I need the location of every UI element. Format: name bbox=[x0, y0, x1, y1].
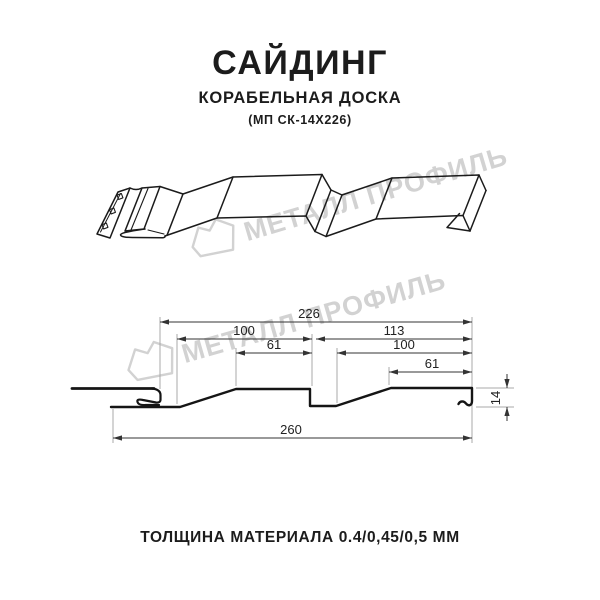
technical-drawing: МЕТАЛЛ ПРОФИЛЬ МЕТАЛЛ ПРОФИЛЬ bbox=[0, 0, 600, 600]
sheet-profile bbox=[111, 388, 472, 407]
hook-band bbox=[125, 187, 160, 232]
material-thickness-caption: ТОЛЩИНА МАТЕРИАЛА 0.4/0,45/0,5 ММ bbox=[0, 529, 600, 547]
dim-right-inner: 100 bbox=[393, 337, 415, 352]
watermark-top: МЕТАЛЛ ПРОФИЛЬ bbox=[187, 135, 511, 262]
dim-overall-width: 260 bbox=[280, 422, 302, 437]
extension-lines bbox=[113, 317, 514, 443]
nail-strip-holes bbox=[102, 194, 123, 229]
dimension-lines bbox=[113, 319, 510, 440]
dim-top-width: 226 bbox=[298, 306, 320, 321]
product-drawing-page: { "header": { "title": "САЙДИНГ", "subti… bbox=[0, 0, 600, 600]
dim-left-flat: 61 bbox=[267, 337, 281, 352]
profile-outline bbox=[72, 388, 472, 407]
dim-right-flat: 61 bbox=[425, 356, 439, 371]
dim-profile-height: 14 bbox=[488, 391, 503, 405]
dim-right-section: 113 bbox=[384, 323, 405, 338]
metall-profil-logo-icon bbox=[123, 338, 179, 385]
hook-lock bbox=[137, 389, 160, 406]
dim-left-section: 100 bbox=[233, 323, 255, 338]
metall-profil-logo-icon bbox=[187, 215, 240, 260]
